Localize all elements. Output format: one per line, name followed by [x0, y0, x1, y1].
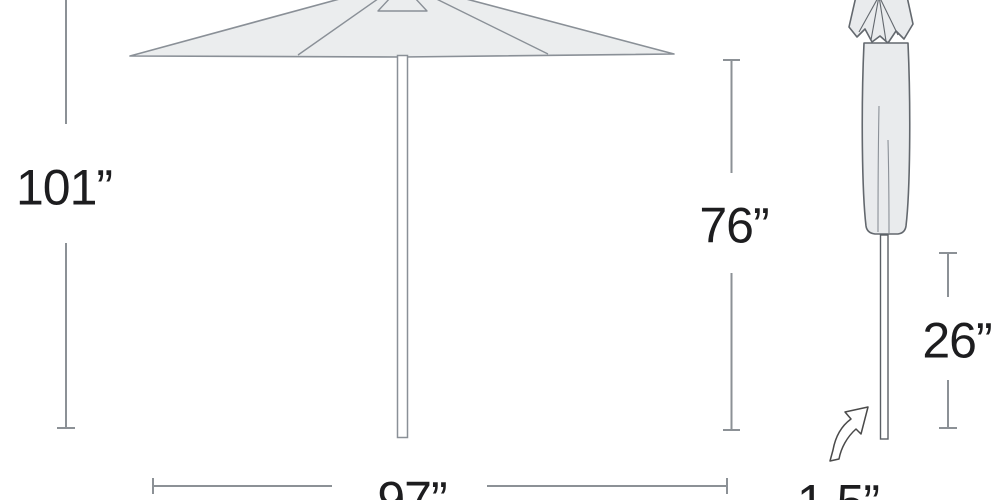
open-umbrella-canopy [130, 0, 674, 57]
closed-cover-height-label: 26” [922, 314, 991, 369]
pole-height-label: 76” [699, 199, 768, 254]
total-height-label: 101” [16, 161, 112, 216]
open-umbrella [130, 0, 674, 438]
pole-diameter-arrow-icon [830, 407, 868, 461]
diagram-canvas [0, 0, 1000, 500]
closed-umbrella [849, 0, 913, 439]
canopy-width-label: 97” [377, 473, 446, 500]
closed-umbrella-body [862, 43, 909, 234]
closed-umbrella-pole [881, 235, 889, 439]
open-umbrella-pole [398, 56, 408, 438]
pole-diameter-label: 1.5” [797, 476, 879, 500]
umbrella-dimension-diagram: 101” 76” 26” 97” 1.5” [0, 0, 1000, 500]
